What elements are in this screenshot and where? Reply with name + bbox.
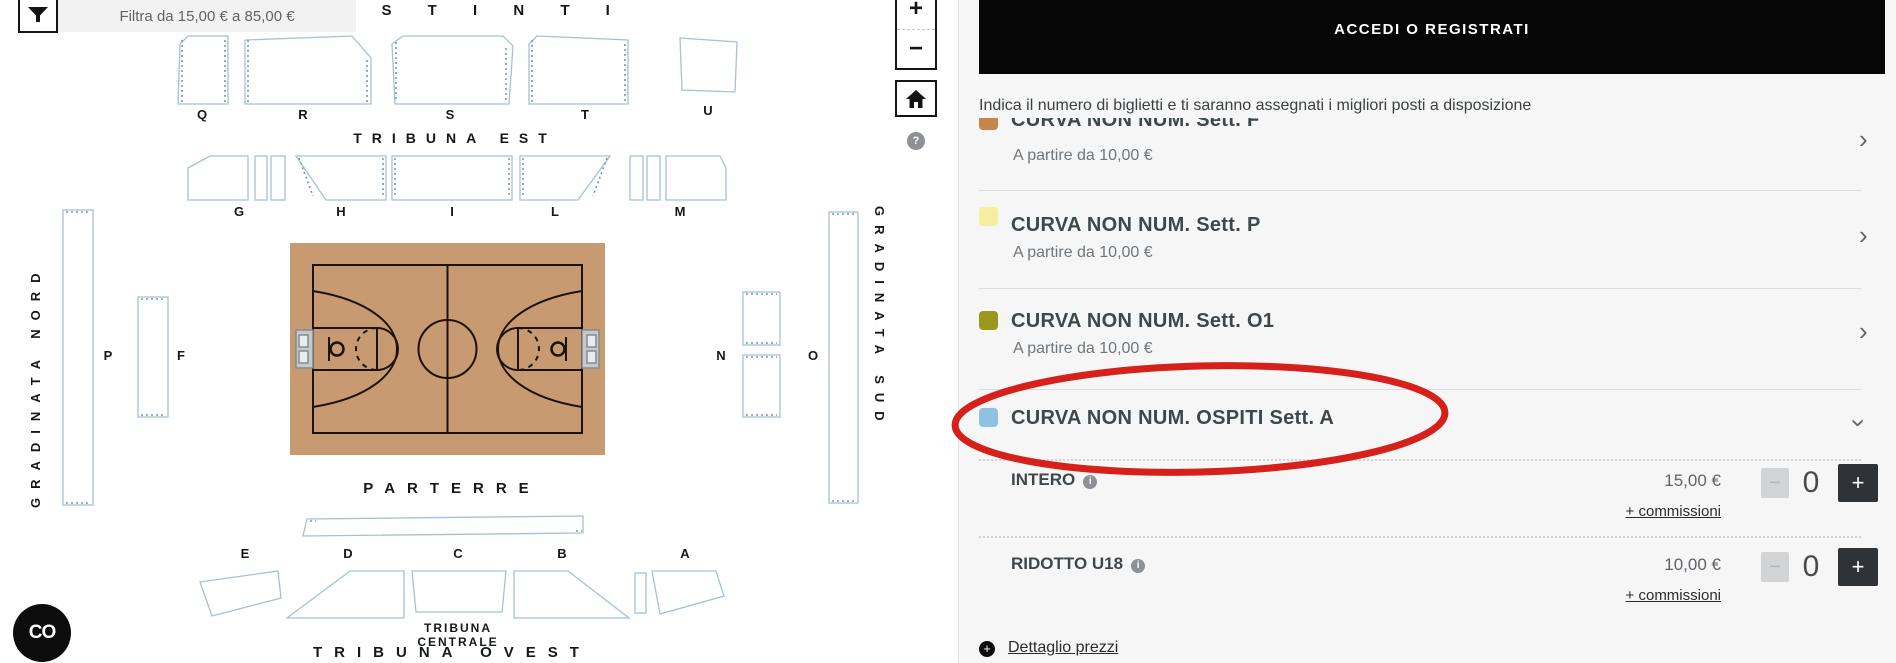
ticket-divider xyxy=(979,536,1861,538)
group-label-parterre: PARTERRE xyxy=(363,480,540,497)
group-label-tribuna-est: TRIBUNA EST xyxy=(353,130,557,146)
section-label-p[interactable]: P xyxy=(104,348,113,363)
sector-color-swatch xyxy=(979,408,998,427)
quantity-decrease-button[interactable]: − xyxy=(1761,468,1789,498)
section-label-h[interactable]: H xyxy=(336,204,345,219)
sector-row-price-from: A partire da 10,00 € xyxy=(1013,244,1153,262)
group-label-gradinata-sud: GRADINATA SUD xyxy=(872,206,887,506)
sector-color-swatch xyxy=(979,118,998,130)
chevron-right-icon[interactable]: › xyxy=(1859,222,1868,248)
sector-color-swatch xyxy=(979,311,998,330)
quantity-value: 0 xyxy=(1793,550,1829,584)
section-label-s[interactable]: S xyxy=(446,107,455,122)
login-register-button[interactable]: ACCEDI O REGISTRATI xyxy=(979,0,1885,74)
section-label-m[interactable]: M xyxy=(675,204,686,219)
ticket-type-intero: INTEROi xyxy=(1011,470,1097,490)
sector-row-title[interactable]: CURVA NON NUM. Sett. F xyxy=(1011,118,1259,132)
quantity-increase-button[interactable]: + xyxy=(1838,464,1878,502)
section-label-b[interactable]: B xyxy=(557,546,566,561)
section-label-d[interactable]: D xyxy=(343,546,352,561)
section-label-n[interactable]: N xyxy=(716,348,725,363)
sector-row-price-from: A partire da 10,00 € xyxy=(1013,340,1153,358)
chevron-right-icon[interactable]: › xyxy=(1859,126,1868,152)
section-label-t[interactable]: T xyxy=(581,107,589,122)
chevron-right-icon[interactable]: › xyxy=(1859,318,1868,344)
fees-link[interactable]: + commissioni xyxy=(1626,503,1721,520)
info-icon[interactable]: i xyxy=(1083,475,1097,489)
section-label-q[interactable]: Q xyxy=(197,107,207,122)
zoom-controls: + − xyxy=(895,0,937,70)
zoom-out-button[interactable]: − xyxy=(897,30,935,69)
fees-link[interactable]: + commissioni xyxy=(1626,587,1721,604)
section-label-f[interactable]: F xyxy=(177,348,185,363)
info-icon[interactable]: i xyxy=(1131,559,1145,573)
sector-row-title[interactable]: CURVA NON NUM. Sett. P xyxy=(1011,213,1261,237)
ticketing-page: D I S T I N T I Q R S T U TRIBUNA EST G … xyxy=(0,0,1896,663)
ticket-divider xyxy=(979,459,1861,461)
chat-widget-button[interactable]: CO xyxy=(13,604,71,662)
seat-map-graphic[interactable] xyxy=(0,0,958,663)
section-label-c[interactable]: C xyxy=(453,546,462,561)
row-divider xyxy=(979,288,1861,289)
sector-row-price-from: A partire da 10,00 € xyxy=(1013,147,1153,165)
ticket-price: 15,00 € xyxy=(1664,471,1721,491)
ticket-type-ridotto: RIDOTTO U18i xyxy=(1011,554,1145,574)
section-label-o[interactable]: O xyxy=(808,348,818,363)
price-detail-icon[interactable]: + xyxy=(979,641,995,657)
quantity-increase-button[interactable]: + xyxy=(1838,548,1878,586)
venue-map: D I S T I N T I Q R S T U TRIBUNA EST G … xyxy=(0,0,958,663)
section-label-u[interactable]: U xyxy=(703,103,712,118)
filter-button[interactable] xyxy=(18,0,58,33)
chevron-down-icon[interactable]: › xyxy=(1846,419,1872,428)
filter-funnel-icon xyxy=(27,6,49,24)
home-icon xyxy=(906,90,926,108)
ticket-price: 10,00 € xyxy=(1664,555,1721,575)
section-label-l[interactable]: L xyxy=(551,204,559,219)
quantity-decrease-button[interactable]: − xyxy=(1761,552,1789,582)
sector-list: CURVA NON NUM. Sett. F A partire da 10,0… xyxy=(961,118,1896,663)
chat-logo: CO xyxy=(29,622,56,644)
sector-color-swatch xyxy=(979,207,998,226)
price-filter-range[interactable]: Filtra da 15,00 € a 85,00 € xyxy=(58,0,356,32)
basketball-court xyxy=(290,243,605,455)
section-label-e[interactable]: E xyxy=(241,546,250,561)
ticket-panel: ACCEDI O REGISTRATI Indica il numero di … xyxy=(958,0,1896,663)
sector-row-title-ospiti[interactable]: CURVA NON NUM. OSPITI Sett. A xyxy=(1011,406,1334,430)
group-label-tribuna-ovest: TRIBUNA OVEST xyxy=(313,644,591,661)
reset-view-button[interactable] xyxy=(895,80,937,117)
quantity-value: 0 xyxy=(1793,466,1829,500)
section-label-a[interactable]: A xyxy=(680,546,689,561)
sector-row-title[interactable]: CURVA NON NUM. Sett. O1 xyxy=(1011,309,1274,333)
price-detail-link[interactable]: Dettaglio prezzi xyxy=(1008,639,1118,657)
row-divider xyxy=(979,190,1861,191)
panel-instruction: Indica il numero di biglietti e ti saran… xyxy=(979,97,1531,115)
section-label-g[interactable]: G xyxy=(234,204,244,219)
section-label-r[interactable]: R xyxy=(298,107,307,122)
section-label-i[interactable]: I xyxy=(450,204,454,219)
help-button[interactable]: ? xyxy=(907,132,925,150)
zoom-in-button[interactable]: + xyxy=(897,0,935,29)
row-divider xyxy=(979,389,1861,390)
group-label-gradinata-nord: GRADINATA NORD xyxy=(28,208,43,508)
